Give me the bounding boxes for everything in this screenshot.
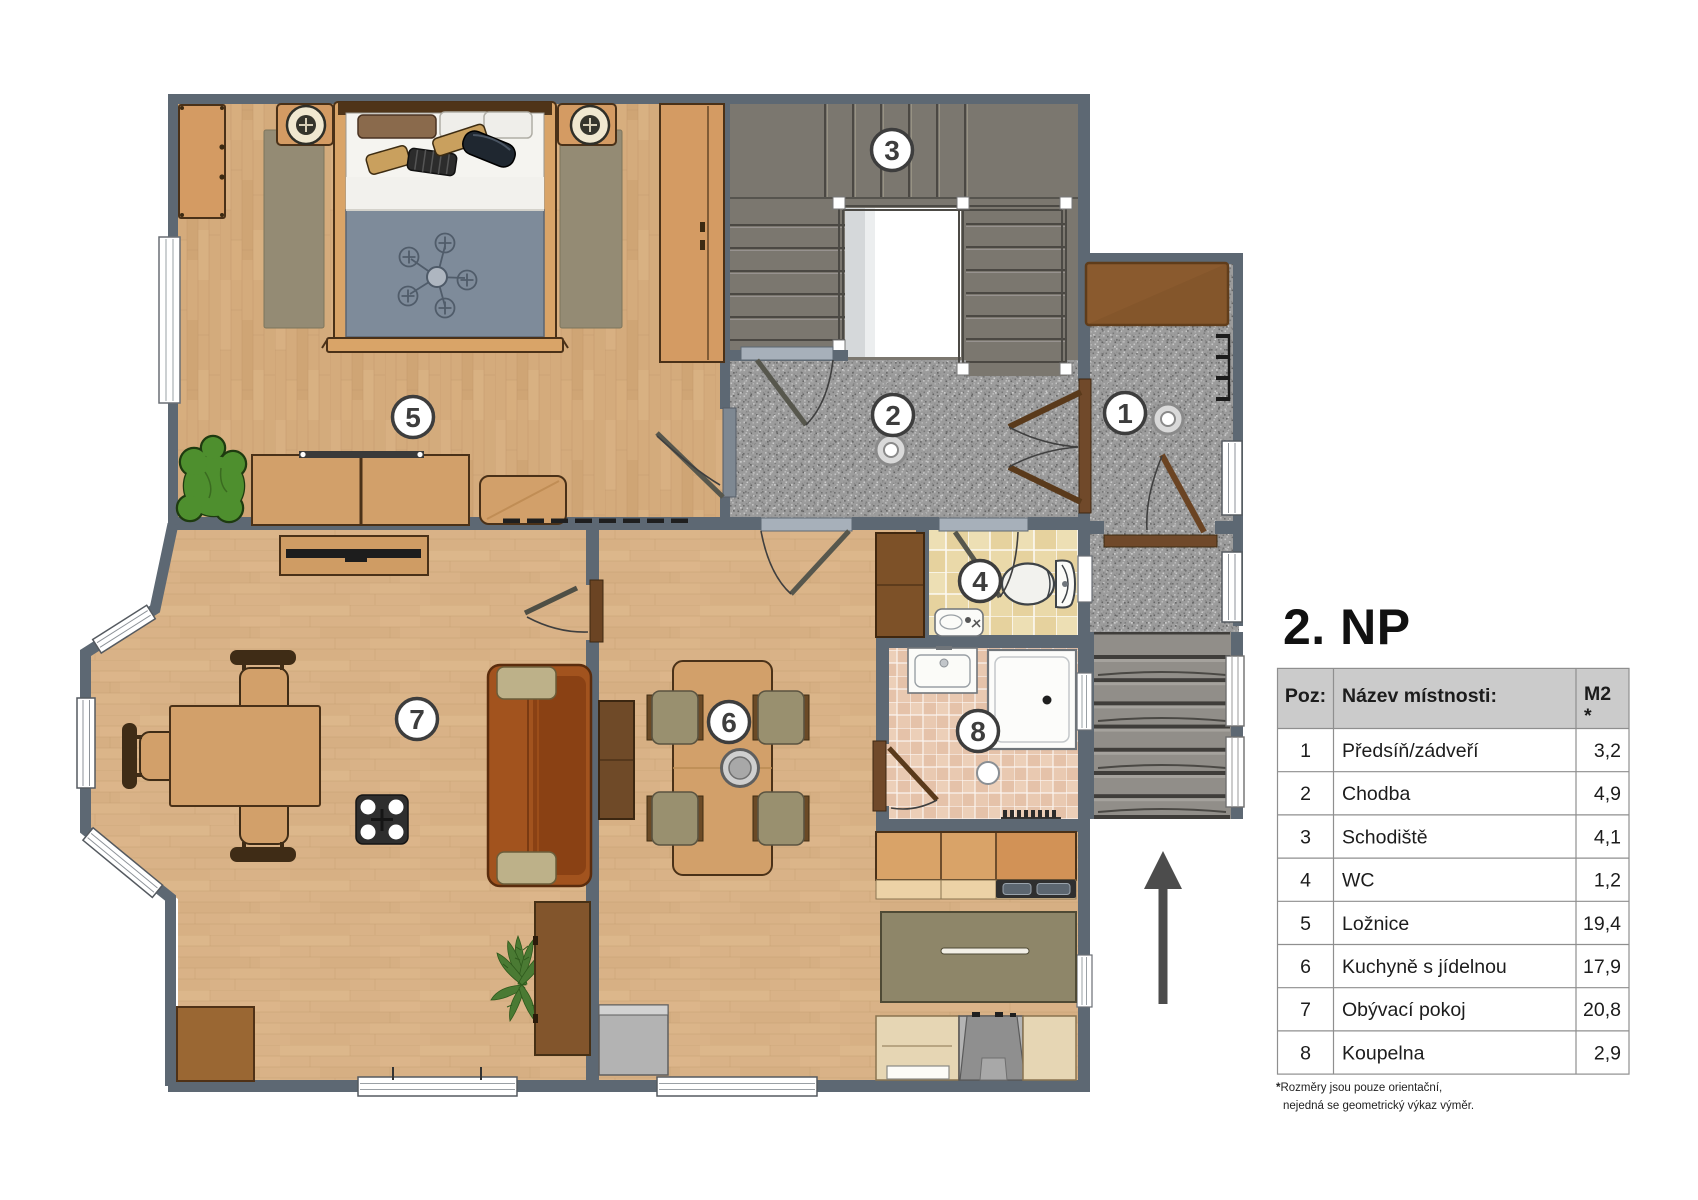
svg-text:Schodiště: Schodiště <box>1342 826 1428 848</box>
svg-text:4: 4 <box>972 566 988 597</box>
svg-text:20,8: 20,8 <box>1583 999 1621 1021</box>
svg-text:*: * <box>1584 705 1592 727</box>
svg-text:2,9: 2,9 <box>1594 1042 1621 1064</box>
svg-text:19,4: 19,4 <box>1583 913 1621 935</box>
svg-text:Chodba: Chodba <box>1342 783 1410 805</box>
svg-text:WC: WC <box>1342 870 1375 892</box>
svg-text:nejedná se geometrický výkaz v: nejedná se geometrický výkaz výměr. <box>1283 1100 1474 1112</box>
svg-text:3: 3 <box>884 135 900 166</box>
svg-text:6: 6 <box>1300 956 1311 978</box>
svg-text:1: 1 <box>1300 740 1311 762</box>
svg-text:Obývací pokoj: Obývací pokoj <box>1342 999 1466 1021</box>
svg-text:4,1: 4,1 <box>1594 826 1621 848</box>
svg-text:M2: M2 <box>1584 683 1611 705</box>
svg-text:4: 4 <box>1300 870 1311 892</box>
svg-text:5: 5 <box>1300 913 1311 935</box>
svg-text:Poz:: Poz: <box>1285 685 1326 707</box>
svg-text:Kuchyně s jídelnou: Kuchyně s jídelnou <box>1342 956 1507 978</box>
svg-text:*Rozměry jsou pouze orientační: *Rozměry jsou pouze orientační, <box>1276 1082 1442 1094</box>
svg-text:5: 5 <box>405 402 421 433</box>
svg-text:Koupelna: Koupelna <box>1342 1042 1425 1064</box>
svg-text:Ložnice: Ložnice <box>1342 913 1409 935</box>
svg-text:17,9: 17,9 <box>1583 956 1621 978</box>
svg-text:6: 6 <box>721 707 737 738</box>
svg-text:1: 1 <box>1117 398 1133 429</box>
svg-text:3,2: 3,2 <box>1594 740 1621 762</box>
svg-text:2. NP: 2. NP <box>1283 599 1411 655</box>
svg-text:8: 8 <box>1300 1042 1311 1064</box>
svg-text:Název místnosti:: Název místnosti: <box>1342 685 1497 707</box>
svg-text:8: 8 <box>970 716 986 747</box>
svg-text:1,2: 1,2 <box>1594 870 1621 892</box>
svg-text:4,9: 4,9 <box>1594 783 1621 805</box>
svg-text:7: 7 <box>1300 999 1311 1021</box>
svg-text:2: 2 <box>885 400 901 431</box>
svg-text:2: 2 <box>1300 783 1311 805</box>
svg-text:Předsíň/zádveří: Předsíň/zádveří <box>1342 740 1479 762</box>
svg-text:3: 3 <box>1300 826 1311 848</box>
svg-text:7: 7 <box>409 704 425 735</box>
